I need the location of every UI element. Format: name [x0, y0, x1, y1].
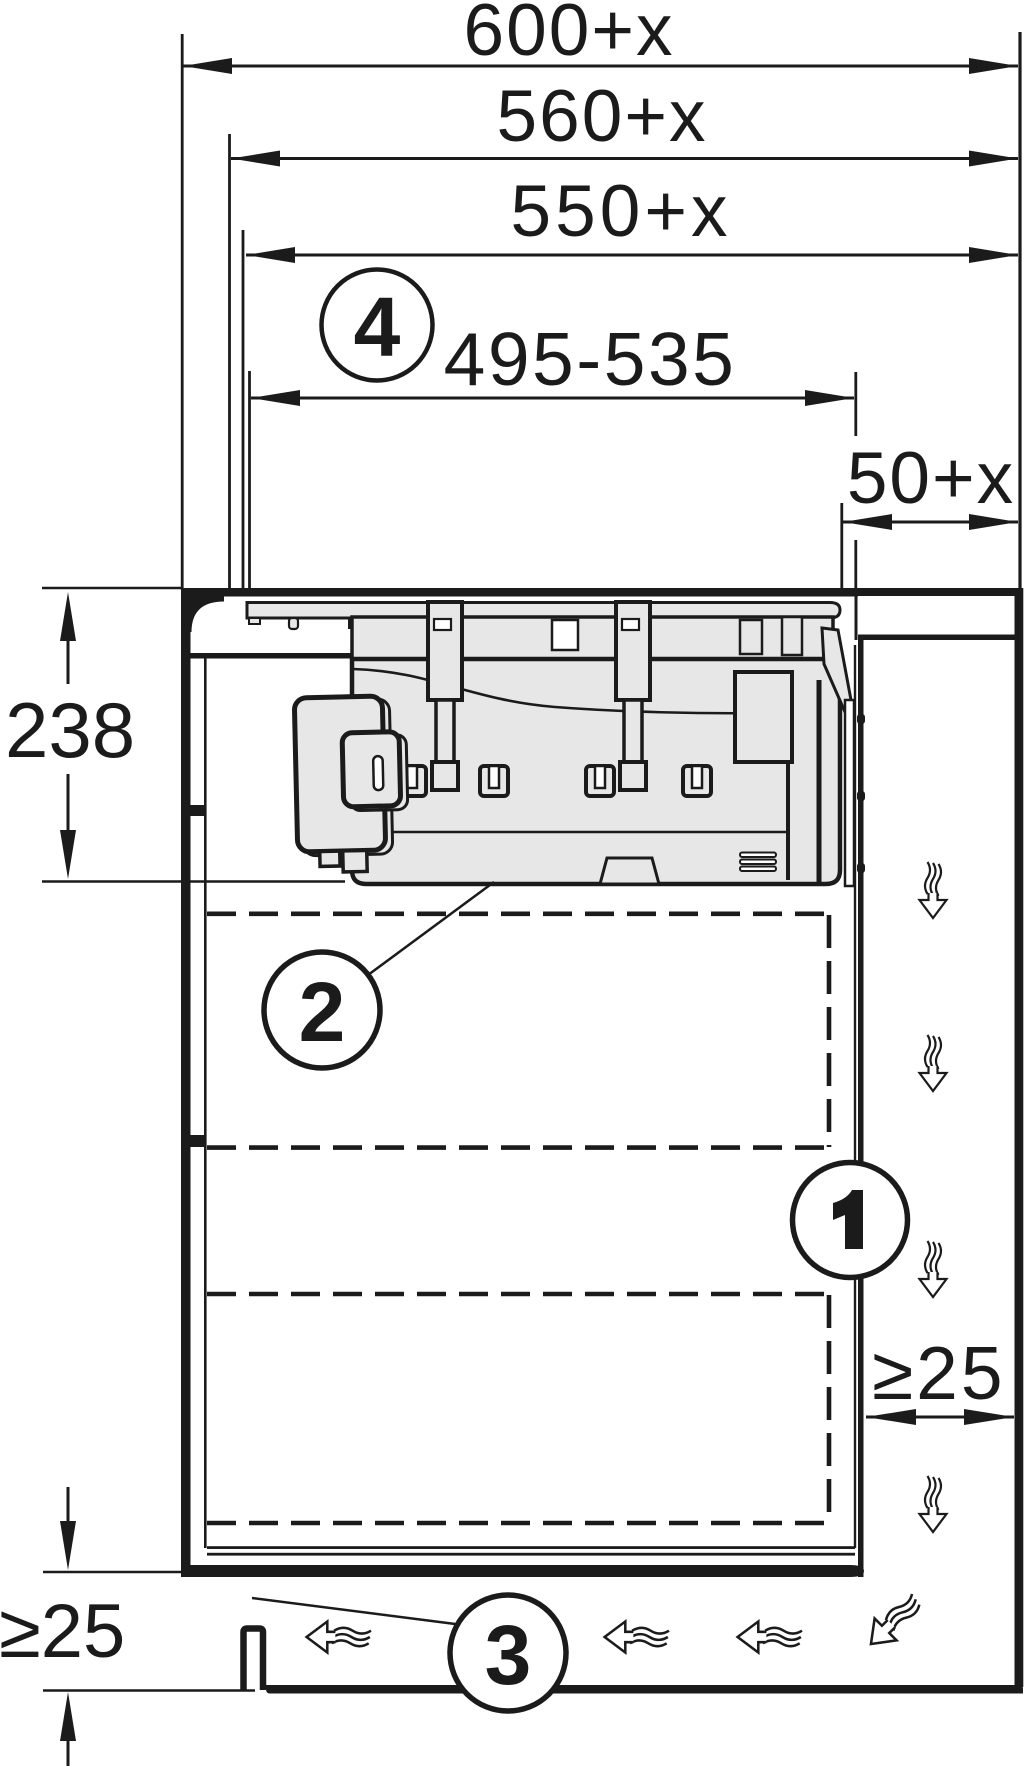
svg-text:≥25: ≥25 — [872, 1331, 1006, 1415]
svg-text:550+x: 550+x — [511, 171, 732, 252]
svg-text:4: 4 — [354, 280, 401, 374]
svg-text:2: 2 — [299, 965, 346, 1059]
svg-text:495-535: 495-535 — [444, 317, 737, 401]
svg-text:3: 3 — [485, 1608, 532, 1702]
svg-text:238: 238 — [5, 686, 135, 774]
svg-text:600+x: 600+x — [464, 0, 675, 71]
svg-text:≥25: ≥25 — [0, 1589, 125, 1674]
svg-text:50+x: 50+x — [847, 438, 1015, 519]
svg-text:560+x: 560+x — [497, 76, 708, 157]
